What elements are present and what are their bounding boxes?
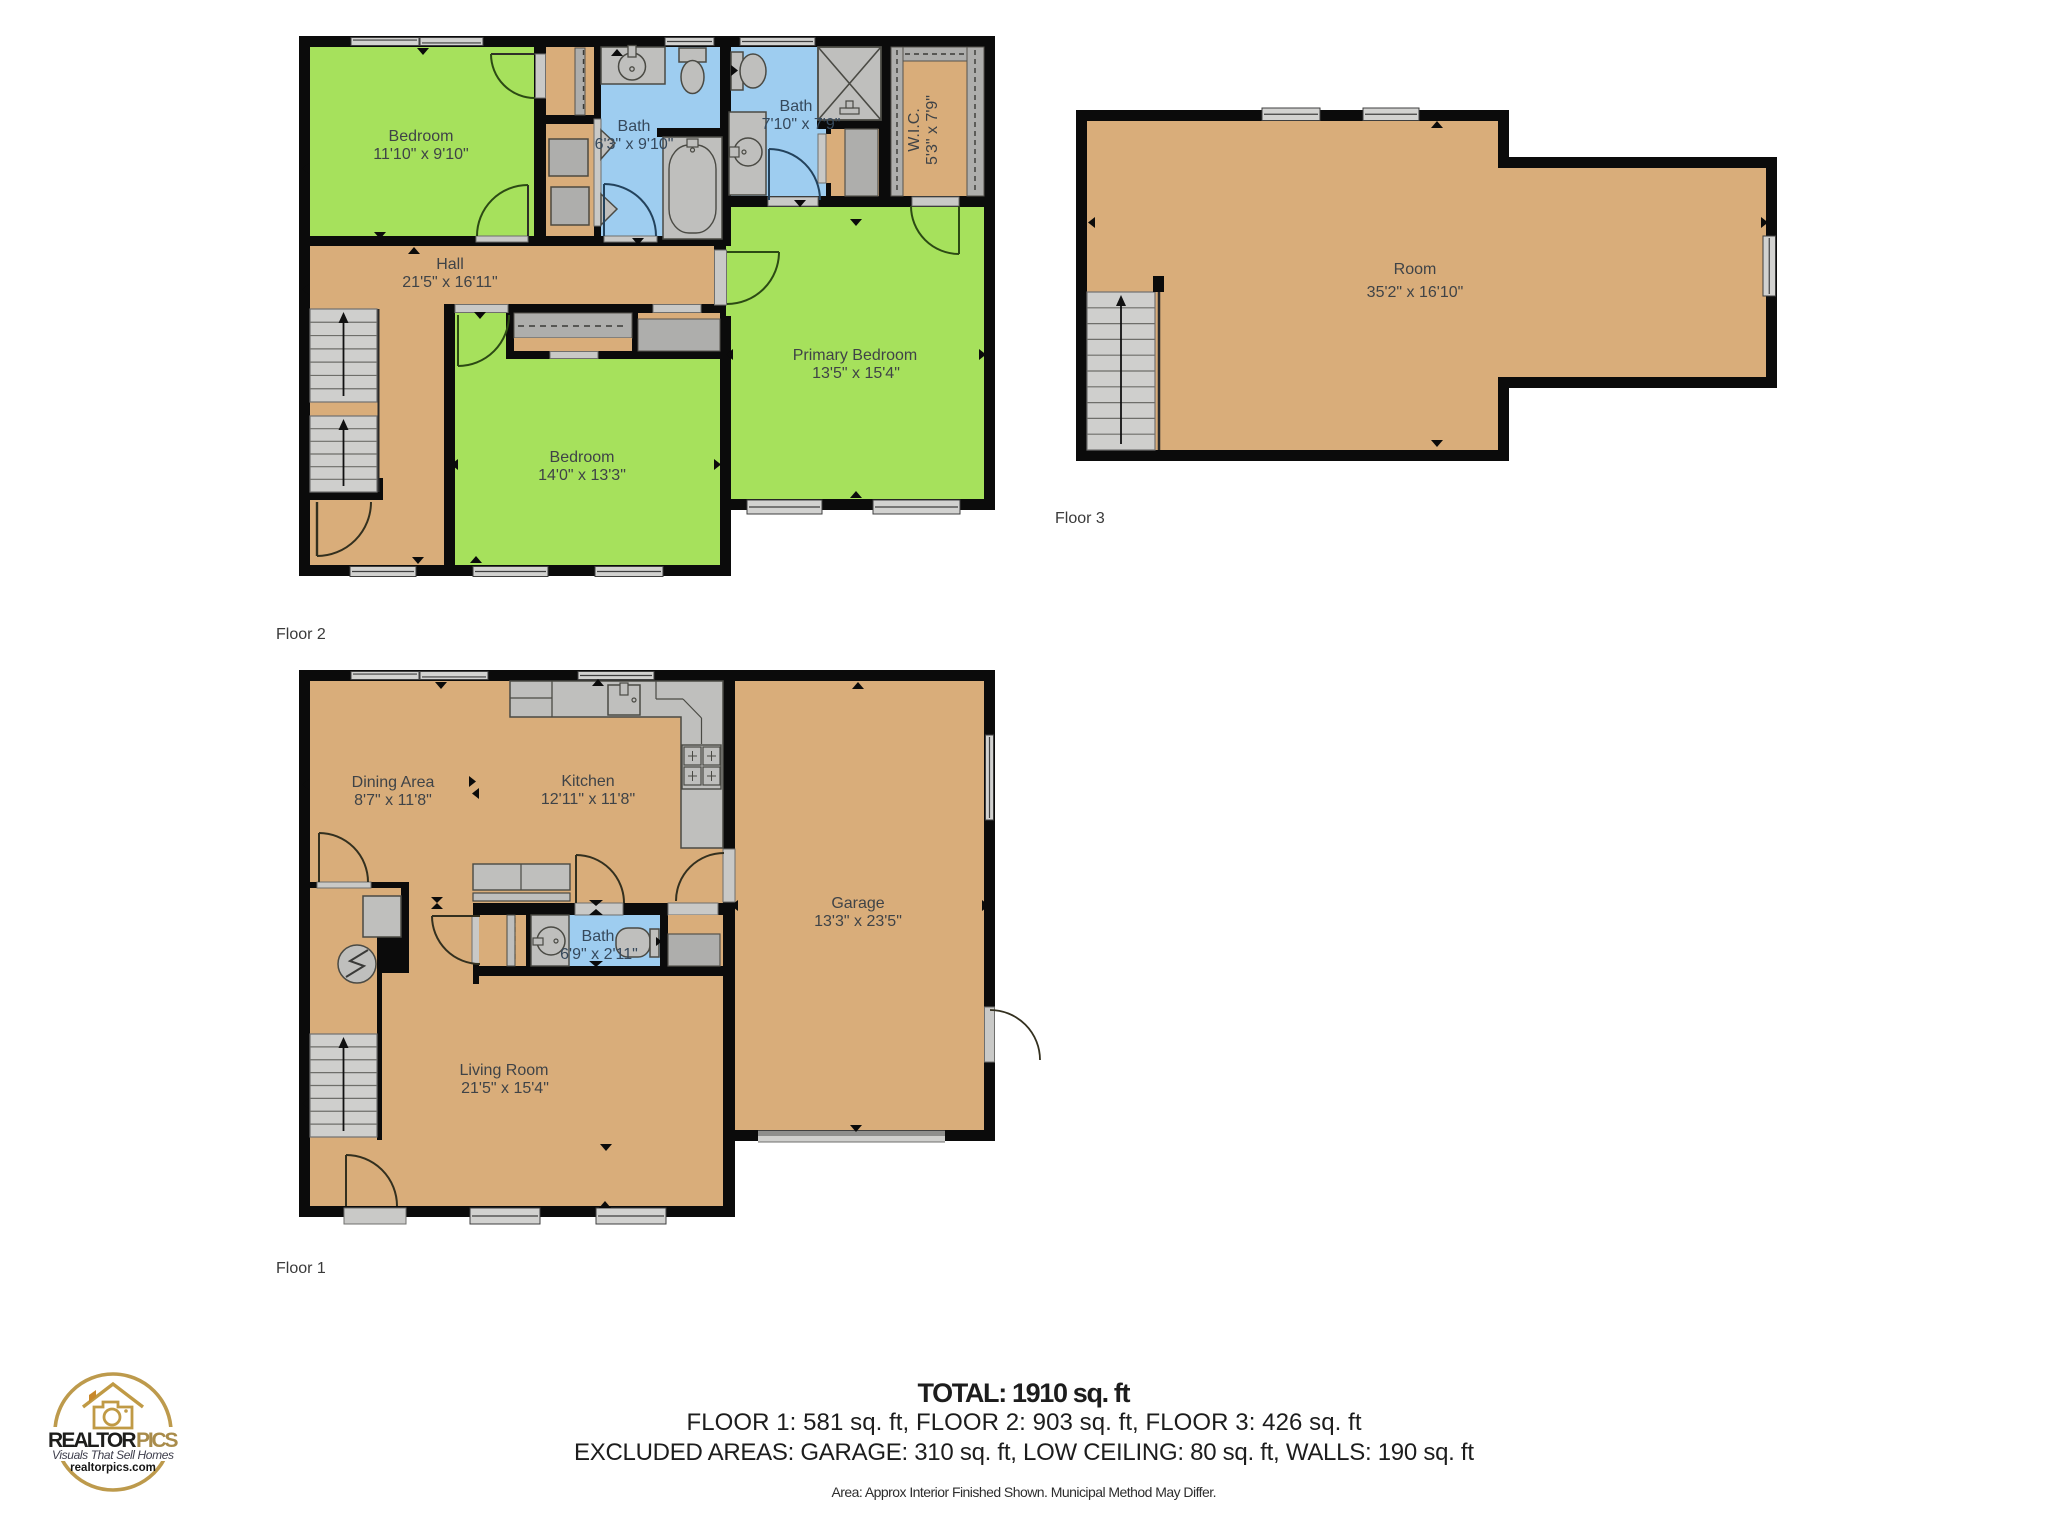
svg-text:Floor 2: Floor 2	[276, 626, 326, 643]
svg-text:5'3" x 7'9": 5'3" x 7'9"	[924, 95, 941, 165]
svg-text:Hall: Hall	[436, 256, 464, 273]
svg-text:7'10" x 7'9": 7'10" x 7'9"	[762, 116, 841, 133]
svg-text:Garage: Garage	[831, 895, 884, 912]
svg-text:EXCLUDED AREAS: GARAGE: 310 sq: EXCLUDED AREAS: GARAGE: 310 sq. ft, LOW …	[574, 1439, 1474, 1466]
svg-text:6'9" x 2'11": 6'9" x 2'11"	[560, 946, 638, 963]
svg-text:Floor 3: Floor 3	[1055, 510, 1105, 527]
svg-text:6'3" x 9'10": 6'3" x 9'10"	[595, 136, 674, 153]
svg-text:35'2" x 16'10": 35'2" x 16'10"	[1367, 284, 1464, 301]
svg-text:13'5" x 15'4": 13'5" x 15'4"	[812, 365, 900, 382]
svg-text:Floor 1: Floor 1	[276, 1260, 326, 1277]
svg-text:W.I.C.: W.I.C.	[906, 108, 923, 152]
svg-text:14'0" x 13'3": 14'0" x 13'3"	[538, 467, 626, 484]
svg-text:TOTAL: 1910 sq. ft: TOTAL: 1910 sq. ft	[918, 1378, 1131, 1408]
svg-text:13'3" x 23'5": 13'3" x 23'5"	[814, 913, 902, 930]
svg-text:8'7" x 11'8": 8'7" x 11'8"	[354, 792, 432, 809]
svg-text:Dining Area: Dining Area	[352, 774, 435, 791]
svg-text:Bedroom: Bedroom	[389, 128, 454, 145]
svg-text:Bath: Bath	[582, 928, 615, 945]
svg-text:12'11" x 11'8": 12'11" x 11'8"	[541, 791, 635, 808]
svg-text:Bedroom: Bedroom	[550, 449, 615, 466]
svg-text:11'10" x 9'10": 11'10" x 9'10"	[373, 146, 468, 163]
svg-text:Bath: Bath	[780, 98, 813, 115]
svg-text:Kitchen: Kitchen	[561, 773, 614, 790]
svg-text:Area: Approx Interior Finished: Area: Approx Interior Finished Shown. Mu…	[832, 1484, 1217, 1500]
svg-text:Room: Room	[1394, 261, 1437, 278]
svg-text:FLOOR 1: 581 sq. ft, FLOOR 2:: FLOOR 1: 581 sq. ft, FLOOR 2: 903 sq. ft…	[687, 1409, 1362, 1436]
svg-text:21'5" x 15'4": 21'5" x 15'4"	[461, 1080, 549, 1097]
svg-text:Living Room: Living Room	[460, 1062, 549, 1079]
svg-text:Visuals That Sell Homes: Visuals That Sell Homes	[52, 1448, 174, 1462]
svg-text:Bath: Bath	[618, 118, 651, 135]
svg-text:realtorpics.com: realtorpics.com	[70, 1462, 156, 1474]
svg-text:21'5" x 16'11": 21'5" x 16'11"	[402, 274, 497, 291]
svg-text:Primary Bedroom: Primary Bedroom	[793, 347, 917, 364]
